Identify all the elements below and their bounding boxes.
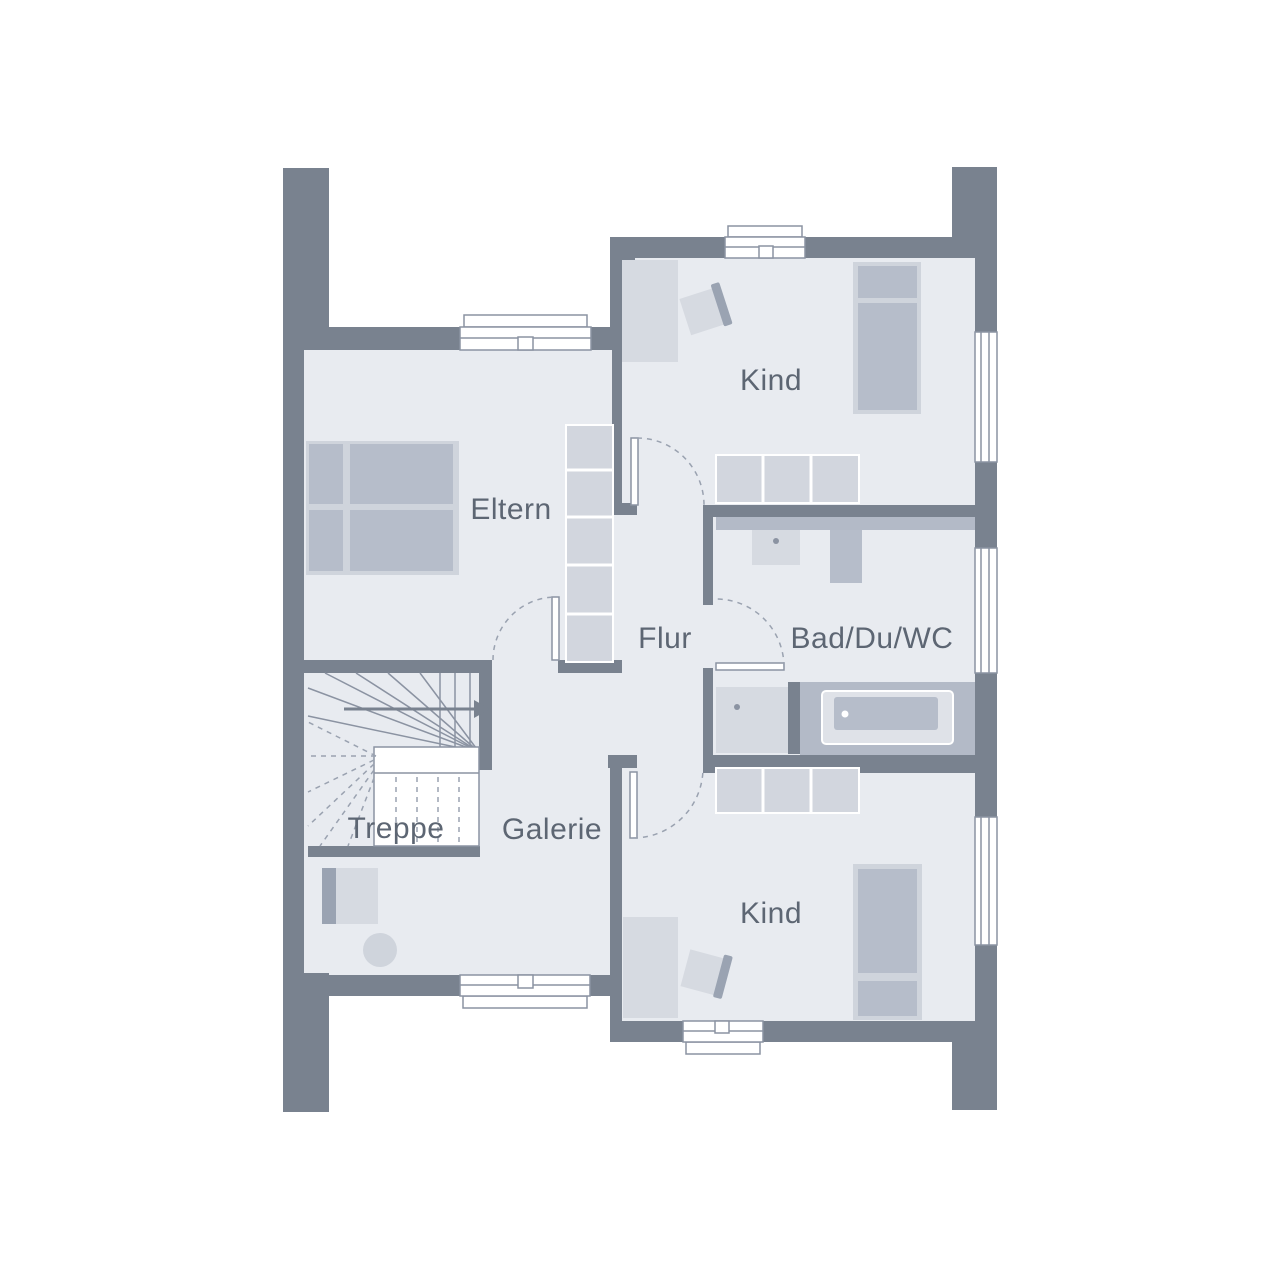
- label-bad: Bad/Du/WC: [791, 622, 954, 655]
- window-right-bad: [975, 548, 997, 673]
- wardrobe-eltern: [566, 425, 613, 662]
- label-galerie: Galerie: [502, 813, 602, 846]
- floor-plan: Kind Eltern Flur Bad/Du/WC Treppe Galeri…: [0, 0, 1280, 1280]
- window-kind-top: [725, 226, 805, 258]
- shower: [716, 687, 788, 753]
- wall-kind-top-left: [612, 237, 725, 258]
- side-table-galerie: [363, 933, 397, 967]
- bathtub: [800, 682, 975, 755]
- wall-right-seg3: [975, 673, 997, 817]
- bed-eltern: [306, 441, 459, 575]
- wall-right-seg1: [975, 258, 997, 332]
- wall-shower-divider: [788, 682, 800, 754]
- wall-kind2-bottom-right: [763, 1021, 952, 1042]
- window-right-kind-bottom: [975, 817, 997, 945]
- desk-kind-bottom: [623, 917, 678, 1018]
- floor-plan-canvas: Kind Eltern Flur Bad/Du/WC Treppe Galeri…: [0, 0, 1280, 1280]
- wall-eltern-top-left: [283, 327, 460, 350]
- wardrobe-kind-top: [716, 455, 859, 503]
- desk-kind-top: [622, 260, 678, 362]
- wall-galerie-bottom-left: [283, 975, 460, 996]
- window-kind-bottom: [683, 1021, 763, 1054]
- toilet: [830, 530, 862, 583]
- bed-kind-top: [853, 262, 921, 414]
- wall-bad-west-upper: [703, 505, 713, 605]
- label-eltern: Eltern: [470, 493, 551, 526]
- sink: [752, 530, 800, 565]
- wall-right-seg2: [975, 462, 997, 548]
- wall-eltern-bottom: [283, 660, 492, 673]
- window-right-kind-top: [975, 332, 997, 462]
- wall-pillar-top-right: [952, 167, 997, 258]
- wall-galerie-bottom-right: [590, 975, 611, 996]
- wall-kind2-bottom-left: [610, 1021, 683, 1042]
- bed-kind-bottom: [853, 864, 922, 1020]
- wall-cap-galerie-kind2: [608, 755, 637, 768]
- wall-galerie-kind2: [610, 757, 622, 1021]
- label-flur: Flur: [638, 622, 692, 655]
- wall-kind-top-right: [805, 237, 952, 258]
- window-galerie-bottom: [460, 975, 590, 1008]
- wall-pillar-top-left: [283, 168, 329, 350]
- wall-stair-east: [479, 672, 492, 770]
- chair-galerie: [322, 868, 378, 924]
- wall-pillar-bottom-right: [952, 1021, 997, 1110]
- label-kind-bottom: Kind: [740, 897, 802, 930]
- wall-stair-south: [308, 846, 480, 857]
- window-eltern-top: [460, 315, 591, 350]
- label-treppe: Treppe: [348, 812, 445, 845]
- wardrobe-kind-bottom: [716, 768, 859, 813]
- wall-bad-west-lower: [703, 668, 713, 768]
- label-kind-top: Kind: [740, 364, 802, 397]
- bath-counter: [716, 517, 975, 530]
- wall-kind-bad: [703, 505, 975, 517]
